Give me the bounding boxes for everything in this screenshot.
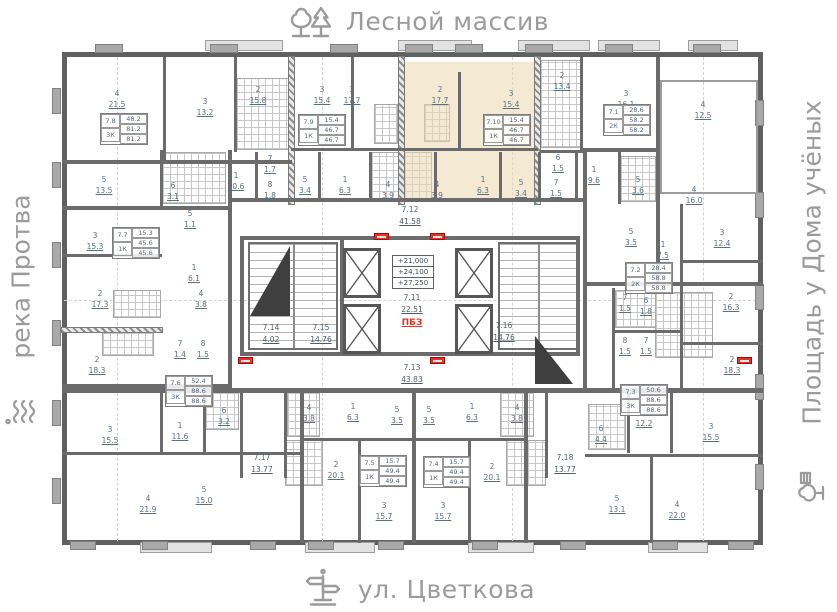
room-number: 2 bbox=[723, 291, 740, 302]
room-area: 1.8 bbox=[640, 306, 652, 317]
pilaster bbox=[525, 44, 553, 53]
apartment-type: 1К bbox=[424, 471, 443, 485]
room-number: 3 bbox=[376, 500, 393, 511]
room-area: 18.3 bbox=[724, 365, 741, 376]
room-number: 1 bbox=[466, 401, 478, 412]
room-number: 3 bbox=[435, 500, 452, 511]
room-area: 6.3 bbox=[347, 412, 359, 423]
room-number: 2 bbox=[484, 461, 501, 472]
zone-label: 7.1614.76 bbox=[493, 320, 514, 344]
room-number: 5 bbox=[299, 174, 311, 185]
room-area: 7.5 bbox=[657, 250, 669, 261]
room-number: 3 bbox=[102, 424, 119, 435]
room-area: 17.7 bbox=[344, 95, 361, 106]
wall bbox=[656, 57, 660, 162]
pilaster bbox=[755, 374, 764, 400]
park-icon bbox=[793, 470, 831, 504]
room-area: 15.5 bbox=[703, 432, 720, 443]
street-label-top: Лесной массив bbox=[0, 2, 837, 40]
trees-icon bbox=[288, 2, 332, 40]
pilaster bbox=[405, 44, 433, 53]
apartment-id: 7.10 bbox=[484, 115, 503, 129]
room-label: 61.8 bbox=[640, 295, 652, 317]
apartment-info-box[interactable]: 7.22К28.458.858.8 bbox=[625, 262, 673, 294]
elevator-x-icon bbox=[458, 307, 490, 351]
room-area: 13.1 bbox=[609, 504, 626, 515]
room-label: 64.4 bbox=[595, 423, 607, 445]
room-area: 21.5 bbox=[109, 99, 126, 110]
wall bbox=[670, 390, 673, 453]
pilaster bbox=[52, 242, 61, 268]
room-label: 43.9 bbox=[382, 179, 394, 201]
room-number: 5 bbox=[609, 493, 626, 504]
room-number: 6 bbox=[640, 295, 652, 306]
zone-label: 7.1514.76 bbox=[310, 322, 331, 346]
pilaster bbox=[308, 541, 334, 550]
street-label-left-text: река Протва bbox=[7, 194, 36, 358]
room-number: 4 bbox=[669, 499, 686, 510]
wall bbox=[683, 342, 763, 345]
elevator-shaft bbox=[343, 248, 381, 298]
room-number: 6 bbox=[552, 152, 564, 163]
room-number: 1 bbox=[347, 401, 359, 412]
apartment-info-box[interactable]: 7.91К15.446.746.7 bbox=[298, 114, 346, 146]
room-area: 6.3 bbox=[466, 412, 478, 423]
wall bbox=[650, 456, 653, 543]
tiled-area bbox=[655, 292, 713, 358]
wall bbox=[62, 206, 232, 210]
room-area: 12.5 bbox=[695, 110, 712, 121]
room-label: 315.7 bbox=[376, 500, 393, 522]
apartment-living-area: 15.7 bbox=[379, 456, 406, 466]
room-number: 2 bbox=[92, 288, 109, 299]
zone-id: 7.12 bbox=[399, 204, 420, 216]
apartment-total-area: 45.6 bbox=[132, 248, 159, 258]
apartment-info-box[interactable]: 7.83К48.281.281.2 bbox=[100, 113, 148, 145]
apartment-info-box[interactable]: 7.51К15.749.449.4 bbox=[359, 455, 407, 487]
apartment-id: 7.4 bbox=[424, 457, 443, 471]
room-area: 15.7 bbox=[435, 511, 452, 522]
room-label: 71.4 bbox=[174, 338, 186, 360]
room-number: 5 bbox=[96, 174, 113, 185]
room-label: 315.7 bbox=[435, 500, 452, 522]
apartment-total-area: 88.6 bbox=[640, 405, 667, 415]
room-label: 315.5 bbox=[102, 424, 119, 446]
room-area: 3.2 bbox=[218, 416, 230, 427]
room-label: 71.5 bbox=[550, 177, 562, 199]
apartment-type: 2К bbox=[626, 277, 645, 291]
pilaster bbox=[52, 478, 61, 504]
room-area: 1.8 bbox=[264, 190, 276, 201]
room-label: 16.3 bbox=[477, 174, 489, 196]
room-area: 1.5 bbox=[550, 188, 562, 199]
wall bbox=[499, 152, 502, 202]
apartment-id: 7.6 bbox=[166, 376, 185, 390]
room-area: 17.7 bbox=[432, 95, 449, 106]
wall bbox=[415, 438, 527, 441]
room-area: 15.5 bbox=[102, 435, 119, 446]
wall bbox=[240, 238, 244, 354]
zone-id: 7.17 bbox=[251, 452, 272, 464]
zone-id: 7.16 bbox=[493, 320, 514, 332]
apartment-total-area: 58.2 bbox=[623, 125, 650, 135]
room-number: 6 bbox=[218, 405, 230, 416]
apartment-type: 3К bbox=[166, 390, 185, 404]
room-number: 3 bbox=[314, 84, 331, 95]
room-label: 312.4 bbox=[714, 227, 731, 249]
room-number: 1 bbox=[188, 262, 200, 273]
room-area: 3.8 bbox=[511, 413, 523, 424]
room-number: 4 bbox=[511, 402, 523, 413]
room-area: 3.5 bbox=[391, 415, 403, 426]
tiled-area bbox=[113, 290, 161, 318]
room-area: 15.8 bbox=[250, 95, 267, 106]
room-label: 51.1 bbox=[184, 208, 196, 230]
apartment-area: 81.2 bbox=[120, 124, 147, 134]
room-area: 3.6 bbox=[632, 185, 644, 196]
apartment-id: 7.1 bbox=[604, 105, 623, 119]
elevator-shaft bbox=[455, 248, 493, 298]
room-area: 15.7 bbox=[376, 511, 393, 522]
fire-zone-label: ПБЗ bbox=[402, 318, 423, 328]
room-label: 63.2 bbox=[218, 405, 230, 427]
apartment-living-area: 15.4 bbox=[318, 115, 345, 125]
room-label: 513.1 bbox=[609, 493, 626, 515]
apartment-area: 49.4 bbox=[379, 466, 406, 476]
apartment-info-box[interactable]: 7.41К15.749.449.4 bbox=[423, 456, 471, 488]
room-area: 3.5 bbox=[625, 237, 637, 248]
room-area: 6.3 bbox=[339, 185, 351, 196]
tiled-area bbox=[102, 330, 154, 356]
zone-id: 7.18 bbox=[554, 452, 575, 464]
room-area: 1.5 bbox=[619, 303, 631, 314]
apartment-area: 45.6 bbox=[132, 238, 159, 248]
room-area: 20.1 bbox=[328, 470, 345, 481]
room-area: 3.4 bbox=[515, 188, 527, 199]
room-number: 8 bbox=[264, 179, 276, 190]
room-label: 315.5 bbox=[703, 421, 720, 443]
room-area: 11.6 bbox=[172, 431, 189, 442]
room-label: 513.5 bbox=[96, 174, 113, 196]
room-area: 4.4 bbox=[595, 434, 607, 445]
wall bbox=[580, 57, 583, 150]
pilaster bbox=[455, 44, 483, 53]
pilaster bbox=[210, 44, 238, 53]
apartment-total-area: 58.8 bbox=[645, 283, 672, 293]
room-area: 16.3 bbox=[723, 302, 740, 313]
wall bbox=[583, 150, 587, 392]
wall bbox=[538, 152, 541, 202]
room-label: 81.8 bbox=[264, 179, 276, 201]
room-number: 3 bbox=[197, 96, 214, 107]
room-area: 3.8 bbox=[195, 299, 207, 310]
zone-area: 43.83 bbox=[401, 374, 422, 386]
room-number: 5 bbox=[632, 174, 644, 185]
apartment-living-area: 48.2 bbox=[120, 114, 147, 124]
street-label-right-text: Площадь у Дома учёных bbox=[798, 100, 827, 424]
floor-plan-page: Лесной массив ул. Цветкова река Протва П… bbox=[0, 0, 837, 612]
fire-equipment-marker bbox=[238, 357, 253, 364]
room-label: 53.5 bbox=[391, 404, 403, 426]
wall bbox=[576, 238, 580, 354]
wall bbox=[240, 236, 580, 240]
room-number: 2 bbox=[432, 84, 449, 95]
room-area: 18.3 bbox=[89, 365, 106, 376]
street-label-bottom: ул. Цветкова bbox=[0, 568, 837, 610]
room-label: 16.1 bbox=[188, 262, 200, 284]
room-label: 217.7 bbox=[432, 84, 449, 106]
zone-area: 4.02 bbox=[263, 334, 280, 346]
apartment-id: 7.3 bbox=[621, 385, 640, 399]
room-label: 53.4 bbox=[299, 174, 311, 196]
wall bbox=[240, 390, 243, 478]
fire-equipment-marker bbox=[430, 357, 445, 364]
pilaster bbox=[52, 400, 61, 426]
zone-id: 7.11 bbox=[401, 292, 422, 304]
wall bbox=[585, 454, 763, 457]
room-area: 15.3 bbox=[87, 241, 104, 252]
room-number: 4 bbox=[109, 88, 126, 99]
fire-equipment-marker bbox=[430, 233, 445, 240]
room-number: 7 bbox=[264, 153, 276, 164]
room-label: 43.8 bbox=[195, 288, 207, 310]
wall bbox=[399, 57, 404, 204]
pilaster bbox=[142, 541, 168, 550]
room-area: 1.5 bbox=[197, 349, 209, 360]
room-number: 4 bbox=[140, 493, 157, 504]
zone-area: 22.51 bbox=[401, 304, 422, 316]
tiled-area bbox=[285, 440, 323, 486]
room-label: 81.5 bbox=[197, 338, 209, 360]
room-label: 110.6 bbox=[228, 170, 245, 192]
room-label: 315.4 bbox=[503, 88, 520, 110]
room-number: 4 bbox=[695, 99, 712, 110]
room-label: 215.8 bbox=[250, 84, 267, 106]
apartment-type: 1К bbox=[484, 129, 503, 143]
room-number: 2 bbox=[344, 84, 361, 95]
apartment-info-box[interactable]: 7.63К52.488.688.6 bbox=[165, 375, 213, 407]
wall bbox=[163, 57, 166, 162]
apartment-id: 7.8 bbox=[101, 114, 120, 128]
room-label: 111.6 bbox=[172, 420, 189, 442]
pilaster bbox=[250, 541, 276, 550]
room-label: 53.6 bbox=[632, 174, 644, 196]
pilaster bbox=[728, 541, 754, 550]
room-number: 6 bbox=[167, 180, 179, 191]
room-number: 7 bbox=[640, 335, 652, 346]
room-number: 5 bbox=[423, 404, 435, 415]
room-number: 8 bbox=[619, 335, 631, 346]
apartment-total-area: 49.4 bbox=[379, 476, 406, 486]
room-label: 61.5 bbox=[552, 152, 564, 174]
room-area: 3.9 bbox=[382, 190, 394, 201]
apartment-total-area: 46.7 bbox=[503, 135, 530, 145]
room-number: 4 bbox=[303, 402, 315, 413]
elevator-shaft bbox=[343, 304, 381, 354]
apartment-area: 46.7 bbox=[318, 125, 345, 135]
street-label-top-text: Лесной массив bbox=[346, 7, 549, 36]
room-label: 71.7 bbox=[264, 153, 276, 175]
wall bbox=[612, 330, 682, 333]
room-label: 71.5 bbox=[619, 292, 631, 314]
zone-label: 7.1813.77 bbox=[554, 452, 575, 476]
pilaster bbox=[693, 44, 721, 53]
room-area: 1.1 bbox=[184, 219, 196, 230]
pilaster bbox=[95, 44, 123, 53]
room-label: 217.7 bbox=[344, 84, 361, 106]
wall bbox=[62, 160, 292, 164]
room-area: 13.5 bbox=[96, 185, 113, 196]
wall bbox=[302, 438, 414, 441]
room-number: 4 bbox=[431, 179, 443, 190]
level-mark: +27,250 bbox=[392, 277, 434, 289]
zone-area: 41.58 bbox=[399, 216, 420, 228]
apartment-type: 1К bbox=[360, 470, 379, 484]
wall bbox=[683, 260, 763, 263]
wall bbox=[458, 72, 461, 150]
room-label: 216.3 bbox=[723, 291, 740, 313]
apartment-id: 7.5 bbox=[360, 456, 379, 470]
wall bbox=[234, 57, 237, 152]
apartment-id: 7.7 bbox=[113, 228, 132, 242]
elevator-shaft bbox=[455, 304, 493, 354]
room-area: 6.1 bbox=[188, 273, 200, 284]
fire-equipment-marker bbox=[737, 357, 752, 364]
wall bbox=[402, 148, 538, 151]
zone-label: 7.1241.58 bbox=[399, 204, 420, 228]
apartment-id: 7.2 bbox=[626, 263, 645, 277]
wall bbox=[291, 148, 402, 151]
zone-area: 13.77 bbox=[251, 464, 272, 476]
apartment-living-area: 15.7 bbox=[443, 457, 470, 467]
room-label: 43.9 bbox=[431, 179, 443, 201]
wall bbox=[284, 390, 287, 478]
room-number: 1 bbox=[339, 174, 351, 185]
apartment-info-box[interactable]: 7.33К50.688.688.6 bbox=[620, 384, 668, 416]
room-label: 313.2 bbox=[197, 96, 214, 118]
wall bbox=[618, 152, 621, 204]
zone-label: 7.144.02 bbox=[263, 322, 280, 346]
room-number: 3 bbox=[87, 230, 104, 241]
wall bbox=[289, 57, 294, 204]
room-area: 22.0 bbox=[669, 510, 686, 521]
room-area: 15.4 bbox=[503, 99, 520, 110]
room-number: 1 bbox=[588, 164, 600, 175]
room-label: 220.1 bbox=[484, 461, 501, 483]
room-area: 3.8 bbox=[303, 413, 315, 424]
wall bbox=[545, 390, 548, 478]
room-label: 213.4 bbox=[554, 70, 571, 92]
street-label-left: река Протва bbox=[7, 177, 36, 377]
fire-equipment-marker bbox=[374, 233, 389, 240]
wall bbox=[583, 148, 660, 152]
room-number: 1 bbox=[657, 239, 669, 250]
apartment-area: 88.6 bbox=[185, 386, 212, 396]
pilaster bbox=[755, 192, 764, 218]
room-number: 1 bbox=[477, 174, 489, 185]
apartment-living-area: 28.4 bbox=[645, 263, 672, 273]
room-label: 315.3 bbox=[87, 230, 104, 252]
apartment-living-area: 15.4 bbox=[503, 115, 530, 125]
apartment-info-box[interactable]: 7.12К28.658.258.2 bbox=[603, 104, 651, 136]
room-label: 19.6 bbox=[588, 164, 600, 186]
zone-label: 7.1713.77 bbox=[251, 452, 272, 476]
room-area: 16.0 bbox=[686, 195, 703, 206]
room-number: 4 bbox=[686, 184, 703, 195]
room-label: 421.9 bbox=[140, 493, 157, 515]
room-area: 12.2 bbox=[636, 418, 653, 429]
room-number: 6 bbox=[595, 423, 607, 434]
apartment-type: 2К bbox=[604, 119, 623, 133]
zone-label: 7.1343.83 bbox=[401, 362, 422, 386]
apartment-area: 58.2 bbox=[623, 115, 650, 125]
room-label: 217.3 bbox=[92, 288, 109, 310]
pilaster bbox=[755, 464, 764, 490]
wall bbox=[583, 282, 763, 286]
room-number: 5 bbox=[625, 226, 637, 237]
room-area: 3.5 bbox=[423, 415, 435, 426]
room-number: 7 bbox=[550, 177, 562, 188]
apartment-area: 88.6 bbox=[640, 395, 667, 405]
zone-area: 14.76 bbox=[310, 334, 331, 346]
room-area: 9.6 bbox=[588, 175, 600, 186]
room-label: 218.3 bbox=[89, 354, 106, 376]
room-label: 421.5 bbox=[109, 88, 126, 110]
wall bbox=[369, 152, 372, 202]
room-label: 53.4 bbox=[515, 177, 527, 199]
wall bbox=[612, 288, 615, 388]
pilaster bbox=[605, 44, 633, 53]
pilaster bbox=[652, 541, 678, 550]
pilaster bbox=[52, 320, 61, 346]
room-label: 17.5 bbox=[657, 239, 669, 261]
apartment-total-area: 81.2 bbox=[120, 134, 147, 144]
room-area: 3.1 bbox=[167, 191, 179, 202]
zone-label: 7.1122.51 bbox=[401, 292, 422, 316]
zone-id: 7.14 bbox=[263, 322, 280, 334]
apartment-type: 1К bbox=[113, 242, 132, 256]
room-label: 315.4 bbox=[314, 84, 331, 106]
room-number: 5 bbox=[184, 208, 196, 219]
tiled-area bbox=[374, 104, 398, 144]
room-label: 53.5 bbox=[423, 404, 435, 426]
room-area: 1.5 bbox=[640, 346, 652, 357]
zone-area: 13.77 bbox=[554, 464, 575, 476]
room-label: 220.1 bbox=[328, 459, 345, 481]
room-area: 13.4 bbox=[554, 81, 571, 92]
room-area: 3.9 bbox=[431, 190, 443, 201]
apartment-info-box[interactable]: 7.101К15.446.746.7 bbox=[483, 114, 531, 146]
pilaster bbox=[52, 162, 61, 188]
apartment-area: 49.4 bbox=[443, 467, 470, 477]
apartment-id: 7.9 bbox=[299, 115, 318, 129]
room-label: 16.3 bbox=[339, 174, 351, 196]
wall bbox=[160, 390, 163, 453]
room-label: 43.8 bbox=[511, 402, 523, 424]
apartment-info-box[interactable]: 7.71К15.345.645.6 bbox=[112, 227, 160, 259]
apartment-area: 46.7 bbox=[503, 125, 530, 135]
apartment-area: 58.8 bbox=[645, 273, 672, 283]
room-label: 71.5 bbox=[640, 335, 652, 357]
room-label: 63.1 bbox=[167, 180, 179, 202]
pilaster bbox=[52, 88, 61, 114]
stair-direction-marker bbox=[535, 336, 573, 384]
zone-id: 7.13 bbox=[401, 362, 422, 374]
room-label: 53.5 bbox=[625, 226, 637, 248]
room-area: 21.9 bbox=[140, 504, 157, 515]
room-number: 3 bbox=[703, 421, 720, 432]
room-label: 81.5 bbox=[619, 335, 631, 357]
